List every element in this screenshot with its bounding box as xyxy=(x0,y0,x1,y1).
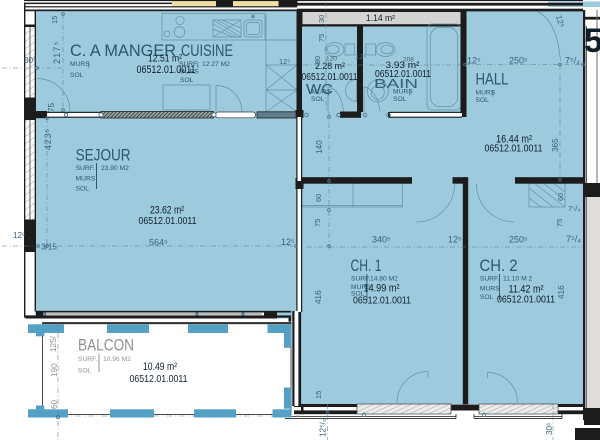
svg-text:1.14 m²: 1.14 m² xyxy=(366,13,395,23)
svg-text:10.96 M2: 10.96 M2 xyxy=(103,356,131,363)
svg-text:30⁵: 30⁵ xyxy=(24,56,37,65)
svg-text:SEJOUR: SEJOUR xyxy=(76,147,131,165)
svg-text:60: 60 xyxy=(556,193,565,201)
svg-text:60: 60 xyxy=(314,194,323,202)
svg-text:HALL: HALL xyxy=(476,71,509,89)
svg-text:60: 60 xyxy=(50,399,59,409)
svg-text:30: 30 xyxy=(317,15,326,23)
svg-text:75: 75 xyxy=(555,219,564,227)
svg-text:06512.01.0011: 06512.01.0011 xyxy=(302,72,358,83)
svg-text:MURS: MURS xyxy=(76,176,96,183)
svg-text:SOL: SOL xyxy=(70,72,84,79)
svg-text:SOL: SOL xyxy=(476,97,490,104)
svg-text:SOL: SOL xyxy=(393,96,407,103)
svg-text:250⁵: 250⁵ xyxy=(509,235,528,245)
svg-text:06512.01.0011: 06512.01.0011 xyxy=(497,294,555,306)
svg-text:140: 140 xyxy=(315,140,324,154)
svg-text:12⁵: 12⁵ xyxy=(448,235,462,245)
svg-text:12⁵: 12⁵ xyxy=(279,57,290,66)
svg-text:12⁵: 12⁵ xyxy=(281,237,295,247)
svg-text:SOL: SOL xyxy=(78,368,92,375)
svg-text:15: 15 xyxy=(50,16,59,24)
svg-text:CH. 2: CH. 2 xyxy=(480,257,518,275)
svg-text:SOL: SOL xyxy=(311,96,325,103)
svg-text:7⁵/₄: 7⁵/₄ xyxy=(565,56,580,66)
svg-text:SURF.: SURF. xyxy=(351,276,370,283)
svg-text:190: 190 xyxy=(50,363,59,377)
svg-text:06512.01.0011: 06512.01.0011 xyxy=(485,143,543,155)
svg-text:|: | xyxy=(409,89,411,96)
svg-text:CH. 1: CH. 1 xyxy=(351,257,382,275)
svg-text:SURF.: SURF. xyxy=(78,356,97,363)
svg-text:75: 75 xyxy=(47,102,56,112)
svg-text:11.10 M 2: 11.10 M 2 xyxy=(503,276,533,283)
svg-text:12⁵: 12⁵ xyxy=(13,231,26,240)
svg-text:365: 365 xyxy=(551,138,560,152)
svg-text:12⁵/₃: 12⁵/₃ xyxy=(319,419,328,437)
svg-text:06512.01.0011: 06512.01.0011 xyxy=(375,69,431,80)
svg-text:CUISINE: CUISINE xyxy=(181,42,233,60)
svg-text:14.99 m²: 14.99 m² xyxy=(364,283,400,295)
svg-text:06512.01.0011: 06512.01.0011 xyxy=(137,64,196,76)
svg-text:7⁵/₄: 7⁵/₄ xyxy=(566,234,581,244)
svg-text:217⁵: 217⁵ xyxy=(52,40,62,64)
svg-text:208: 208 xyxy=(403,57,414,64)
svg-text:SOL: SOL xyxy=(76,186,90,193)
svg-text:12⁵: 12⁵ xyxy=(467,56,481,66)
svg-text:SURF.: SURF. xyxy=(480,276,499,283)
svg-text:120: 120 xyxy=(326,56,337,63)
svg-text:80: 80 xyxy=(313,56,322,64)
svg-text:SURF.: SURF. xyxy=(76,165,95,172)
svg-text:125/: 125/ xyxy=(49,335,58,352)
svg-text:BALCON: BALCON xyxy=(78,337,134,355)
svg-text:250⁵: 250⁵ xyxy=(509,56,528,66)
svg-text:|: | xyxy=(328,89,330,96)
svg-text:|: | xyxy=(88,62,90,69)
svg-text:3/15: 3/15 xyxy=(41,243,57,252)
svg-text:|: | xyxy=(197,62,199,69)
svg-text:06512.01.0011: 06512.01.0011 xyxy=(130,373,188,385)
svg-text:7⁵/₄: 7⁵/₄ xyxy=(568,204,580,213)
svg-text:23.90 M2: 23.90 M2 xyxy=(101,165,129,172)
svg-text:12.51 m²: 12.51 m² xyxy=(148,53,182,65)
svg-text:15: 15 xyxy=(314,391,323,399)
svg-text:12 27 M2: 12 27 M2 xyxy=(202,61,230,68)
svg-text:14.80 M2: 14.80 M2 xyxy=(370,276,398,283)
svg-text:416: 416 xyxy=(314,290,323,304)
svg-text:5: 5 xyxy=(584,22,600,60)
svg-text:416: 416 xyxy=(557,285,566,299)
svg-text:06512.01.0011: 06512.01.0011 xyxy=(139,215,197,227)
svg-text:423⁵: 423⁵ xyxy=(43,128,53,150)
svg-text:30⁵: 30⁵ xyxy=(545,422,554,435)
svg-text:12⁵: 12⁵ xyxy=(355,52,366,61)
svg-text:75: 75 xyxy=(313,219,322,227)
svg-text:SOL: SOL xyxy=(180,77,194,84)
svg-text:564⁵: 564⁵ xyxy=(149,238,168,248)
svg-text:SOL: SOL xyxy=(480,294,494,301)
svg-text:10.49 m²: 10.49 m² xyxy=(143,361,177,373)
svg-text:75: 75 xyxy=(317,34,326,42)
svg-text:MURS: MURS xyxy=(480,286,500,293)
svg-text:|: | xyxy=(492,90,494,97)
svg-text:06512.01.0011: 06512.01.0011 xyxy=(353,295,411,307)
svg-text:340⁵: 340⁵ xyxy=(372,235,391,245)
